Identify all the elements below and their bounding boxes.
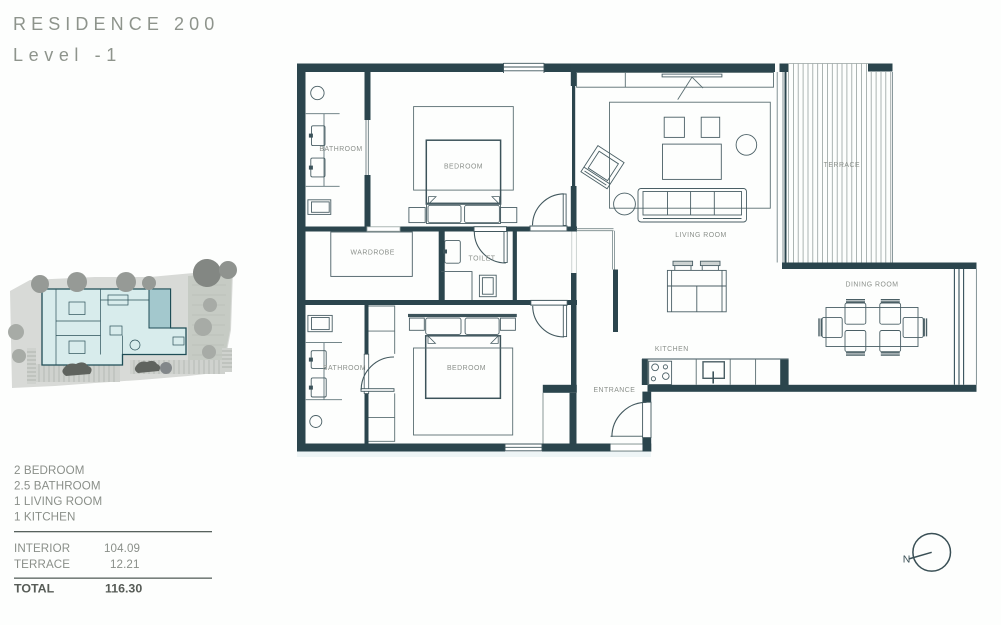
svg-text:BEDROOM: BEDROOM xyxy=(447,365,486,372)
svg-text:BEDROOM: BEDROOM xyxy=(444,164,483,171)
svg-text:1 KITCHEN: 1 KITCHEN xyxy=(14,511,75,524)
svg-text:DINING ROOM: DINING ROOM xyxy=(846,282,899,289)
svg-text:WARDROBE: WARDROBE xyxy=(351,250,395,257)
svg-text:RESIDENCE 200: RESIDENCE 200 xyxy=(13,14,219,34)
svg-text:BATHROOM: BATHROOM xyxy=(319,146,362,153)
svg-text:12.21: 12.21 xyxy=(110,558,140,571)
svg-text:1 LIVING ROOM: 1 LIVING ROOM xyxy=(14,495,102,508)
svg-text:LIVING ROOM: LIVING ROOM xyxy=(675,232,726,239)
svg-text:TOILET: TOILET xyxy=(469,256,496,263)
svg-text:INTERIOR: INTERIOR xyxy=(14,542,70,555)
svg-text:104.09: 104.09 xyxy=(104,542,140,555)
svg-text:2 BEDROOM: 2 BEDROOM xyxy=(14,464,84,477)
svg-text:TERRACE: TERRACE xyxy=(824,162,860,169)
svg-text:ENTRANCE: ENTRANCE xyxy=(593,387,635,394)
svg-text:Level -1: Level -1 xyxy=(13,45,122,65)
svg-text:TOTAL: TOTAL xyxy=(14,582,55,596)
svg-text:BATHROOM: BATHROOM xyxy=(323,365,366,372)
svg-text:TERRACE: TERRACE xyxy=(14,558,70,571)
svg-text:2.5 BATHROOM: 2.5 BATHROOM xyxy=(14,480,101,493)
svg-text:N: N xyxy=(903,554,911,566)
svg-text:KITCHEN: KITCHEN xyxy=(655,346,689,353)
svg-text:116.30: 116.30 xyxy=(105,582,142,596)
